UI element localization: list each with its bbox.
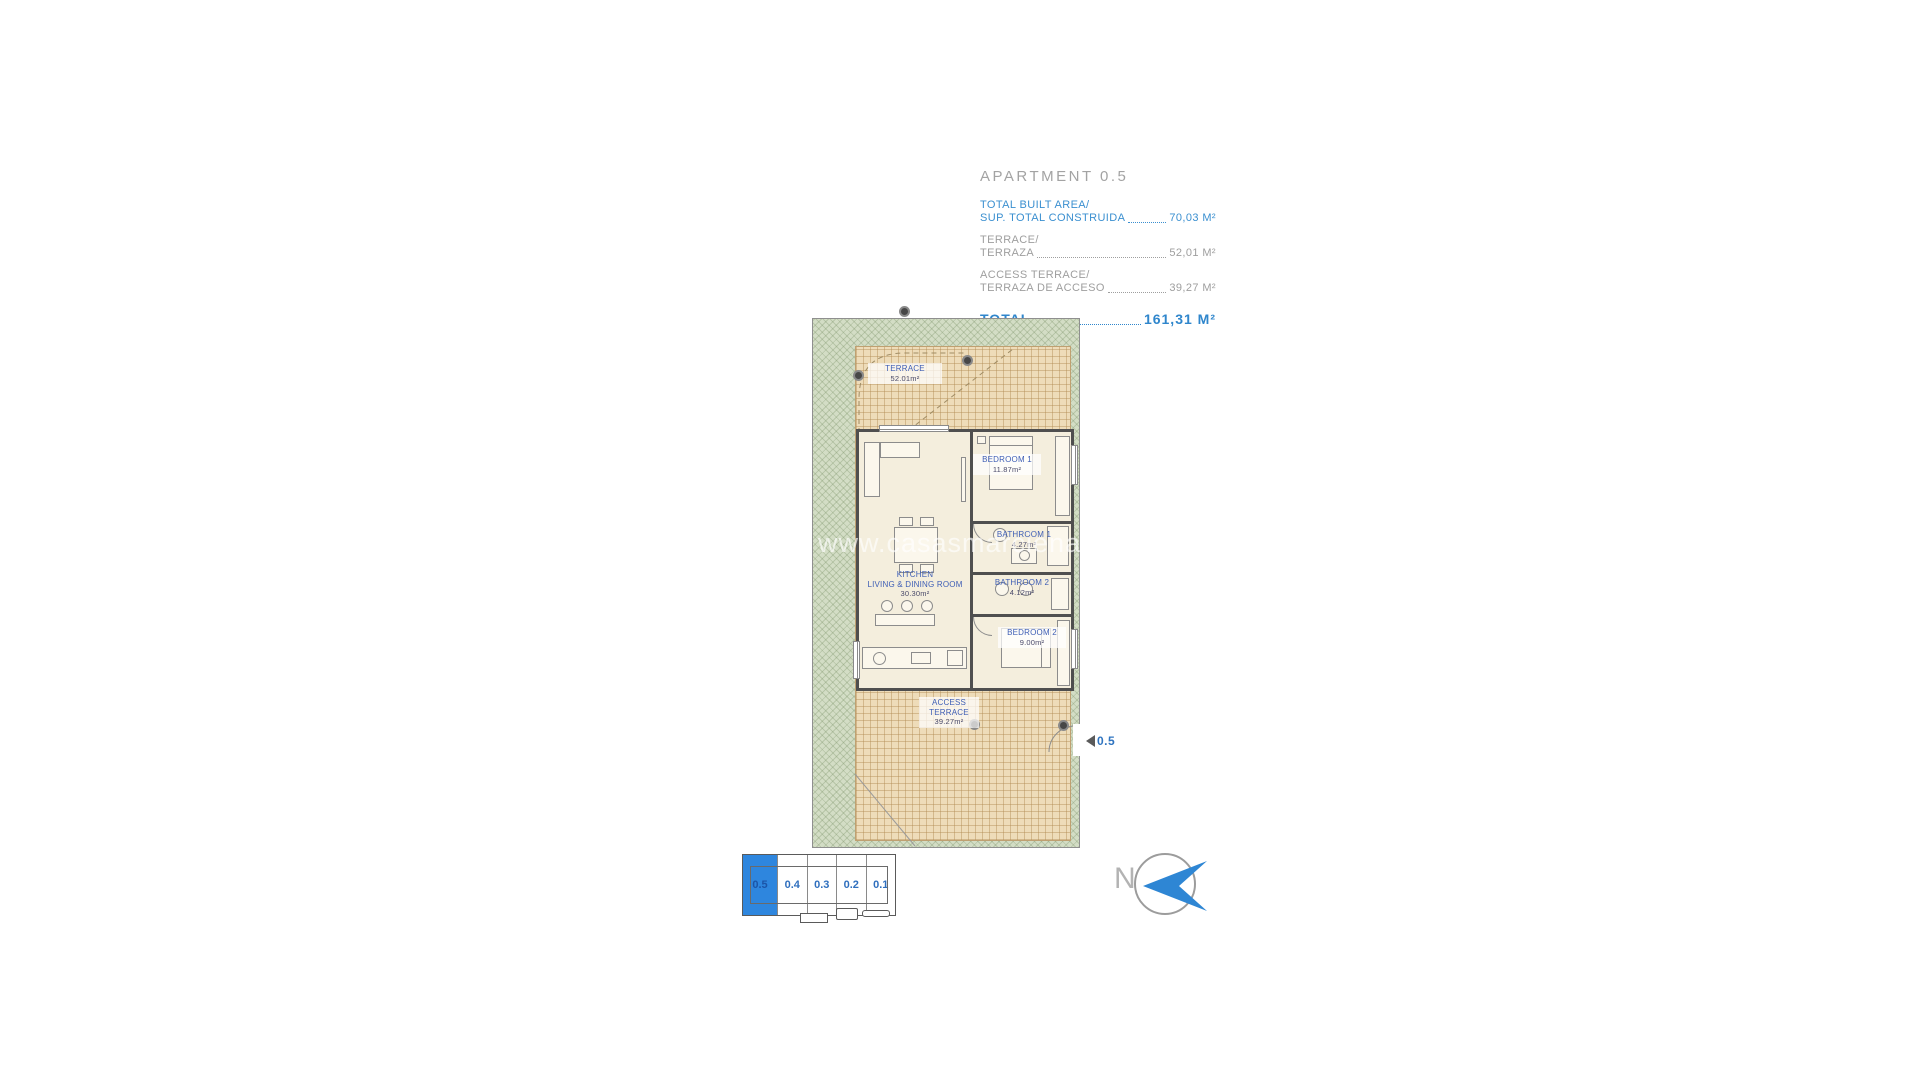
sofa xyxy=(864,442,880,497)
area-row-terrace-value: 52,01 M² xyxy=(1169,247,1216,260)
label-bedroom2-area: 9.00m² xyxy=(1000,638,1064,648)
dining-chair xyxy=(899,517,913,526)
area-row-terrace-label-es: TERRAZA xyxy=(980,247,1034,260)
key-plan-stair-slot xyxy=(836,908,858,920)
area-row-access-terrace-label-en: ACCESS TERRACE/ xyxy=(980,269,1216,282)
label-bathroom2: BATHROOM 2 4.12m² xyxy=(985,577,1059,598)
kitchen-sink xyxy=(873,652,886,665)
apartment-info-panel: APARTMENT 0.5 TOTAL BUILT AREA/ SUP. TOT… xyxy=(980,168,1216,327)
area-row-terrace-label-en: TERRACE/ xyxy=(980,234,1216,247)
column-marker xyxy=(1058,720,1069,731)
label-bathroom2-name: BATHROOM 2 xyxy=(987,578,1057,588)
page: APARTMENT 0.5 TOTAL BUILT AREA/ SUP. TOT… xyxy=(0,0,1920,1080)
total-value: 161,31 M² xyxy=(1144,311,1216,327)
building-key-plan: 0.5 0.4 0.3 0.2 0.1 xyxy=(740,852,902,922)
entrance-unit-number: 0.5 xyxy=(1097,734,1115,748)
entrance-opening xyxy=(1073,724,1080,756)
label-bedroom1: BEDROOM 1 11.87m² xyxy=(973,454,1041,475)
label-access-area: 39.27m² xyxy=(921,717,977,727)
floor-plan-plot: TERRACE 52.01m² BEDROOM 1 11.87m² KITCHE… xyxy=(812,318,1080,848)
label-access-terrace: ACCESS TERRACE 39.27m² xyxy=(919,697,979,728)
wardrobe-bedroom1 xyxy=(1055,436,1070,516)
north-arrow-icon xyxy=(1141,857,1209,913)
unit-cell-0-2[interactable]: 0.2 xyxy=(837,855,867,915)
area-row-access-terrace-label-es: TERRAZA DE ACCESO xyxy=(980,282,1105,295)
label-bathroom1-name: BATHROOM 1 xyxy=(991,530,1057,540)
label-terrace-area: 52.01m² xyxy=(870,374,940,384)
bed-pillow xyxy=(989,436,1033,446)
label-bathroom1: BATHROOM 1 4.27m² xyxy=(989,529,1059,550)
dotted-leader xyxy=(1108,292,1167,293)
label-kitchen-living: KITCHEN LIVING & DINING ROOM 30.30m² xyxy=(859,569,971,600)
area-row-built-label-en: TOTAL BUILT AREA/ xyxy=(980,199,1216,212)
bar-stool xyxy=(881,600,893,612)
nightstand xyxy=(977,436,986,444)
column-marker xyxy=(853,370,864,381)
area-row-access-terrace: ACCESS TERRACE/ TERRAZA DE ACCESO 39,27 … xyxy=(980,269,1216,295)
window-bedroom2 xyxy=(1071,629,1078,669)
key-plan-ramp xyxy=(862,910,890,917)
label-kitchen-line2: LIVING & DINING ROOM xyxy=(861,580,969,590)
label-access-line1: ACCESS xyxy=(921,698,977,708)
label-terrace-name: TERRACE xyxy=(870,364,940,374)
area-row-terrace: TERRACE/ TERRAZA 52,01 M² xyxy=(980,234,1216,260)
dotted-leader xyxy=(1128,222,1166,223)
sink-bowl xyxy=(1019,550,1030,561)
entrance-arrow-icon xyxy=(1086,735,1095,747)
bar-stool xyxy=(921,600,933,612)
area-row-built: TOTAL BUILT AREA/ SUP. TOTAL CONSTRUIDA … xyxy=(980,199,1216,225)
label-bedroom2: BEDROOM 2 9.00m² xyxy=(998,627,1066,648)
key-plan-entry-notch xyxy=(800,913,828,923)
column-marker xyxy=(962,355,973,366)
label-bedroom2-name: BEDROOM 2 xyxy=(1000,628,1064,638)
dotted-leader xyxy=(1037,257,1166,258)
cooktop xyxy=(911,652,931,664)
door-access-terrace xyxy=(853,641,860,679)
bar-stool xyxy=(901,600,913,612)
label-terrace: TERRACE 52.01m² xyxy=(868,363,942,384)
dining-table xyxy=(894,527,938,563)
label-kitchen-area: 30.30m² xyxy=(861,589,969,599)
apartment-title: APARTMENT 0.5 xyxy=(980,168,1216,185)
sliding-door-terrace xyxy=(879,425,949,432)
label-bedroom1-area: 11.87m² xyxy=(975,465,1039,475)
wall-bath1-bath2 xyxy=(970,572,1071,575)
sofa-chaise xyxy=(880,442,920,458)
tv-unit xyxy=(961,457,966,502)
column-marker xyxy=(899,306,910,317)
unit-cell-0-4[interactable]: 0.4 xyxy=(778,855,808,915)
area-row-built-value: 70,03 M² xyxy=(1169,212,1216,225)
dining-chair xyxy=(920,517,934,526)
label-access-line2: TERRACE xyxy=(921,708,977,718)
label-kitchen-line1: KITCHEN xyxy=(861,570,969,580)
unit-cell-0-1[interactable]: 0.1 xyxy=(867,855,896,915)
entrance-marker: 0.5 xyxy=(1086,734,1115,748)
label-bathroom1-area: 4.27m² xyxy=(991,540,1057,550)
kitchen-peninsula xyxy=(875,614,935,626)
area-row-access-terrace-value: 39,27 M² xyxy=(1169,282,1216,295)
unit-cells: 0.5 0.4 0.3 0.2 0.1 xyxy=(742,854,896,916)
apartment-building-outline xyxy=(856,429,1074,691)
label-bathroom2-area: 4.12m² xyxy=(987,588,1057,598)
unit-cell-0-5[interactable]: 0.5 xyxy=(743,855,778,915)
fridge xyxy=(947,650,963,666)
label-bedroom1-name: BEDROOM 1 xyxy=(975,455,1039,465)
door-arc-bedroom2 xyxy=(973,617,992,636)
unit-cell-0-3[interactable]: 0.3 xyxy=(808,855,838,915)
window-bedroom1 xyxy=(1071,445,1078,485)
north-label: N xyxy=(1114,862,1136,896)
area-row-built-label-es: SUP. TOTAL CONSTRUIDA xyxy=(980,212,1125,225)
